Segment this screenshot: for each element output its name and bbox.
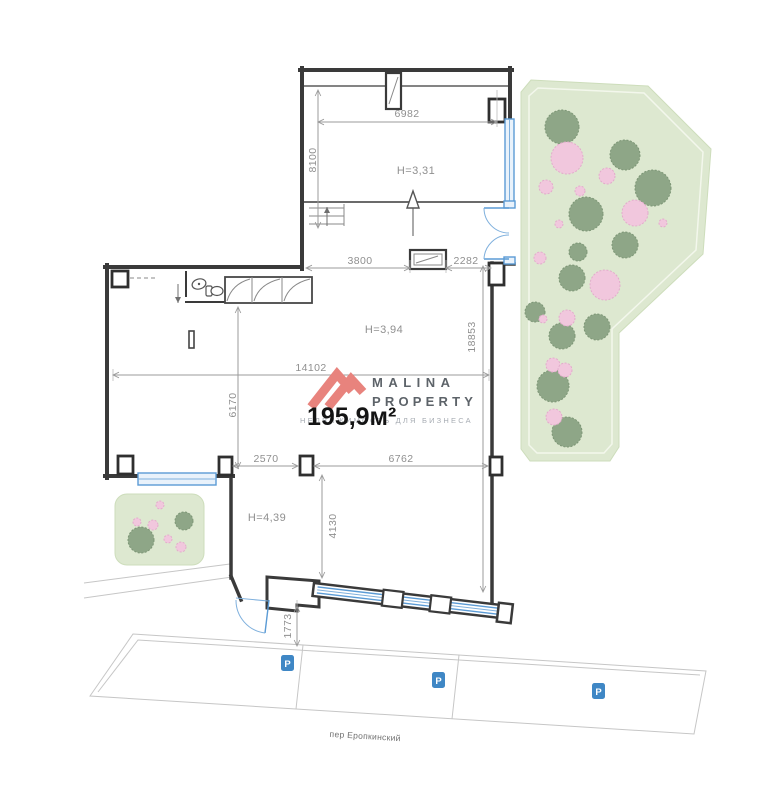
door-frame-bottom: [504, 257, 515, 264]
dimension-label-18853: 18853: [466, 321, 478, 352]
tree-icon-green: [175, 512, 193, 530]
sink-drain: [198, 283, 200, 285]
area-label: 195,9м²: [307, 403, 396, 431]
tree-icon-pink: [534, 252, 546, 264]
tree-icon-pink: [164, 535, 172, 543]
tree-icon-green: [549, 323, 575, 349]
street-band: [90, 634, 706, 734]
door-frame-top: [504, 201, 515, 208]
tree-icon-green: [569, 243, 587, 261]
dimension-label-14102: 14102: [295, 362, 326, 374]
small-garden-area: [115, 494, 204, 565]
parking-divider: [452, 655, 459, 719]
column: [112, 271, 128, 287]
tree-icon-green: [559, 265, 585, 291]
column: [489, 263, 504, 285]
column: [219, 457, 232, 475]
tree-icon-pink: [551, 142, 583, 174]
column: [118, 456, 133, 474]
bathroom: [178, 272, 225, 348]
dimension-label-4130: 4130: [327, 514, 339, 539]
tree-icon-pink: [148, 520, 158, 530]
closet-units: [225, 277, 312, 303]
dimension-label-6982: 6982: [395, 108, 420, 120]
tree-icon-green: [610, 140, 640, 170]
stairs-icon: [309, 204, 344, 226]
parking-sign: P: [432, 672, 445, 688]
radiator-icon: [189, 331, 194, 348]
floor-plan: P P P пер Еропкинский: [0, 0, 782, 800]
closet-unit: [225, 277, 312, 303]
floor-plan-page: P P P пер Еропкинский: [0, 0, 782, 800]
north-arrow-icon: [407, 191, 419, 236]
parking-sign-label: P: [595, 687, 602, 698]
garden-area: [521, 80, 711, 461]
tree-icon-pink: [599, 168, 615, 184]
height-label-2: H=3,94: [365, 324, 403, 336]
tree-icon-green: [545, 110, 579, 144]
dimension-label-2282: 2282: [454, 255, 479, 267]
tree-icon-green: [584, 314, 610, 340]
tree-icon-green: [612, 232, 638, 258]
dimension-label-1773: 1773: [282, 614, 294, 639]
facade-pier: [430, 595, 452, 613]
double-door-right: [484, 208, 509, 259]
toilet-icon: [206, 286, 223, 296]
entry-door: [236, 598, 269, 633]
entry-porch: [267, 577, 319, 611]
height-label-1: H=3,31: [397, 165, 435, 177]
tree-icon-pink: [133, 518, 141, 526]
tree-icon-pink: [622, 200, 648, 226]
parking-sign: P: [592, 683, 605, 699]
parking-sign-label: P: [435, 676, 442, 687]
brand-name-line1: MALINA: [372, 375, 456, 390]
height-label-3: H=4,39: [248, 512, 286, 524]
column: [490, 457, 502, 475]
electrical-panel-icon: [410, 250, 446, 269]
wall-lower-diagonal: [231, 576, 241, 600]
dimension-label-2570: 2570: [254, 453, 279, 465]
tree-icon-pink: [176, 542, 186, 552]
tree-icon-pink: [156, 501, 164, 509]
dimension-label-3800: 3800: [348, 255, 373, 267]
parking-sign-label: P: [284, 659, 291, 670]
tree-icon-pink: [590, 270, 620, 300]
street-name: пер Еропкинский: [329, 729, 401, 743]
parking-sign: P: [281, 655, 294, 671]
tree-icon-pink: [555, 220, 563, 228]
tree-icon-pink: [546, 409, 562, 425]
dimension-label-8100: 8100: [307, 148, 319, 173]
dimension-label-6762: 6762: [389, 453, 414, 465]
tree-icon-pink: [539, 180, 553, 194]
parking-divider: [296, 645, 303, 709]
tree-icon-pink: [558, 363, 572, 377]
dimension-label-6170: 6170: [227, 393, 239, 418]
column: [300, 456, 313, 475]
tree-icon-green: [635, 170, 671, 206]
facade-end-cap: [497, 603, 513, 624]
tree-icon-pink: [539, 315, 547, 323]
tree-icon-pink: [559, 310, 575, 326]
tree-icon-pink: [575, 186, 585, 196]
tree-icon-green: [569, 197, 603, 231]
street-band-inner: [98, 640, 700, 692]
watermark: MALINA PROPERTY НЕДВИЖИМОСТЬ ДЛЯ БИЗНЕСА…: [300, 374, 477, 431]
vent-icon: [386, 73, 401, 109]
tree-icon-pink: [659, 219, 667, 227]
tree-icon-green: [128, 527, 154, 553]
facade-pier: [382, 590, 404, 608]
